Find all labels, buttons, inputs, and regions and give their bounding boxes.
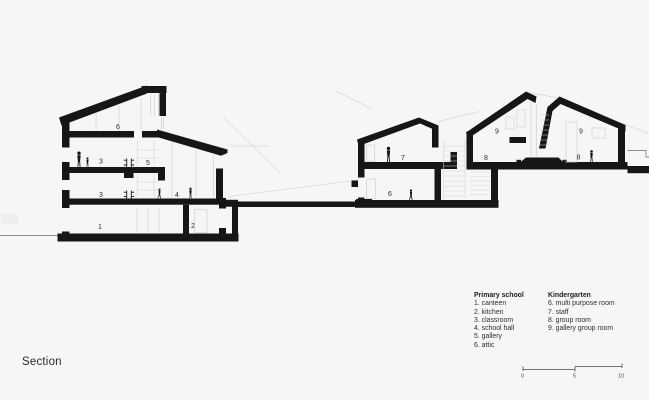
- attic-floor-slab: [142, 131, 159, 138]
- room-label: 6: [116, 124, 120, 131]
- attic-floor-slab: [70, 131, 135, 138]
- ground-floor-slab: [62, 199, 226, 205]
- legend-item: 4. school hall: [474, 325, 548, 333]
- stair-parapet: [451, 152, 458, 169]
- scale-tick-label: 5: [573, 374, 576, 380]
- upper-floor-slab: [70, 167, 166, 173]
- person-figure: [409, 189, 413, 200]
- room-label: 2: [191, 223, 195, 230]
- exterior-step: [352, 181, 359, 188]
- legend-item: 2. kitchen: [474, 309, 548, 317]
- room-label: 3: [99, 192, 103, 199]
- page-title: Section: [22, 356, 62, 368]
- room-label: 8: [484, 155, 488, 162]
- left-wall: [62, 162, 70, 180]
- legend: Primary school 1. canteen 2. kitchen 3. …: [474, 292, 622, 350]
- threshold: [356, 199, 372, 207]
- room-label: 1: [98, 224, 102, 231]
- legend-item: 6. multi purpose room: [548, 300, 622, 308]
- floor-step-platform: [521, 158, 564, 163]
- basement-right-wall: [219, 198, 226, 209]
- primary-school-section: 6 3 5 3 4 1 2: [58, 86, 239, 242]
- ground-slab-right: [628, 166, 649, 173]
- roof-middle-gable: [466, 92, 537, 139]
- kindergarten-section: 7 6 9 8 9 8: [352, 92, 649, 208]
- room-label: 4: [175, 192, 179, 199]
- door-symbol: [124, 191, 134, 199]
- legend-heading-primary-school: Primary school: [474, 292, 548, 300]
- legend-item: 7. staff: [548, 309, 622, 317]
- kitchen-wall: [183, 205, 189, 234]
- person-figure: [158, 189, 161, 199]
- person-figure: [387, 147, 390, 162]
- roof-left-slope: [59, 86, 147, 126]
- ground-step-right: [628, 151, 649, 158]
- door-lintel: [124, 173, 134, 178]
- room-label: 7: [401, 155, 405, 162]
- person-figure: [590, 150, 593, 162]
- interior-window-lines: [367, 101, 606, 199]
- basement-right-wall: [219, 228, 226, 234]
- room-label: 9: [579, 129, 583, 136]
- stair-wall: [491, 169, 498, 201]
- person-figure: [189, 188, 191, 199]
- person-figure: [86, 157, 88, 166]
- clerestory-cap: [142, 86, 167, 93]
- upper-floor-slab: [364, 162, 457, 169]
- left-wall: [358, 140, 365, 178]
- roof-small-gable: [357, 118, 439, 147]
- scale-tick-label: 0: [521, 374, 524, 380]
- right-wall: [216, 150, 223, 154]
- gallery-slab-edge: [510, 137, 527, 143]
- legend-item: 5. gallery: [474, 333, 548, 341]
- clerestory-wall: [160, 93, 167, 116]
- room-label: 8: [577, 155, 581, 162]
- interior-window-lines: [96, 97, 214, 233]
- architectural-section-page: 6 3 5 3 4 1 2: [0, 0, 649, 400]
- legend-item: 3. classroom: [474, 317, 548, 325]
- room-label: 5: [146, 160, 150, 167]
- room-label: 9: [495, 129, 499, 136]
- legend-item: 8. group room: [548, 317, 622, 325]
- floor-step: [517, 160, 522, 162]
- scale-tick-label: 10: [618, 374, 624, 380]
- hanging-wall: [432, 126, 439, 148]
- right-wall: [618, 125, 625, 164]
- legend-item: 1. canteen: [474, 300, 548, 308]
- room-label: 3: [99, 159, 103, 166]
- left-wall: [62, 121, 70, 148]
- legend-kindergarten: Kindergarten 6. multi purpose room 7. st…: [548, 292, 622, 350]
- interior-wall: [435, 169, 442, 201]
- plaza-ground-slab: [232, 202, 358, 208]
- basement-floor-slab: [58, 234, 239, 242]
- right-wall: [216, 169, 223, 199]
- scale-bar: 0 5 10: [521, 364, 624, 380]
- legend-item: 9. gallery group room: [548, 325, 622, 333]
- room-label: 6: [388, 191, 392, 198]
- legend-item: 6. attic: [474, 342, 548, 350]
- background-terrain-block: [1, 214, 18, 225]
- person-figure: [77, 152, 80, 167]
- door-symbol: [124, 159, 134, 168]
- gallery-slab-edge: [158, 173, 165, 181]
- areaway-wall: [232, 202, 238, 234]
- main-floor-slab: [467, 162, 628, 170]
- roof-right-gable: [539, 97, 626, 149]
- legend-primary-school: Primary school 1. canteen 2. kitchen 3. …: [474, 292, 548, 350]
- legend-heading-kindergarten: Kindergarten: [548, 292, 622, 300]
- lower-floor-slab: [355, 200, 499, 208]
